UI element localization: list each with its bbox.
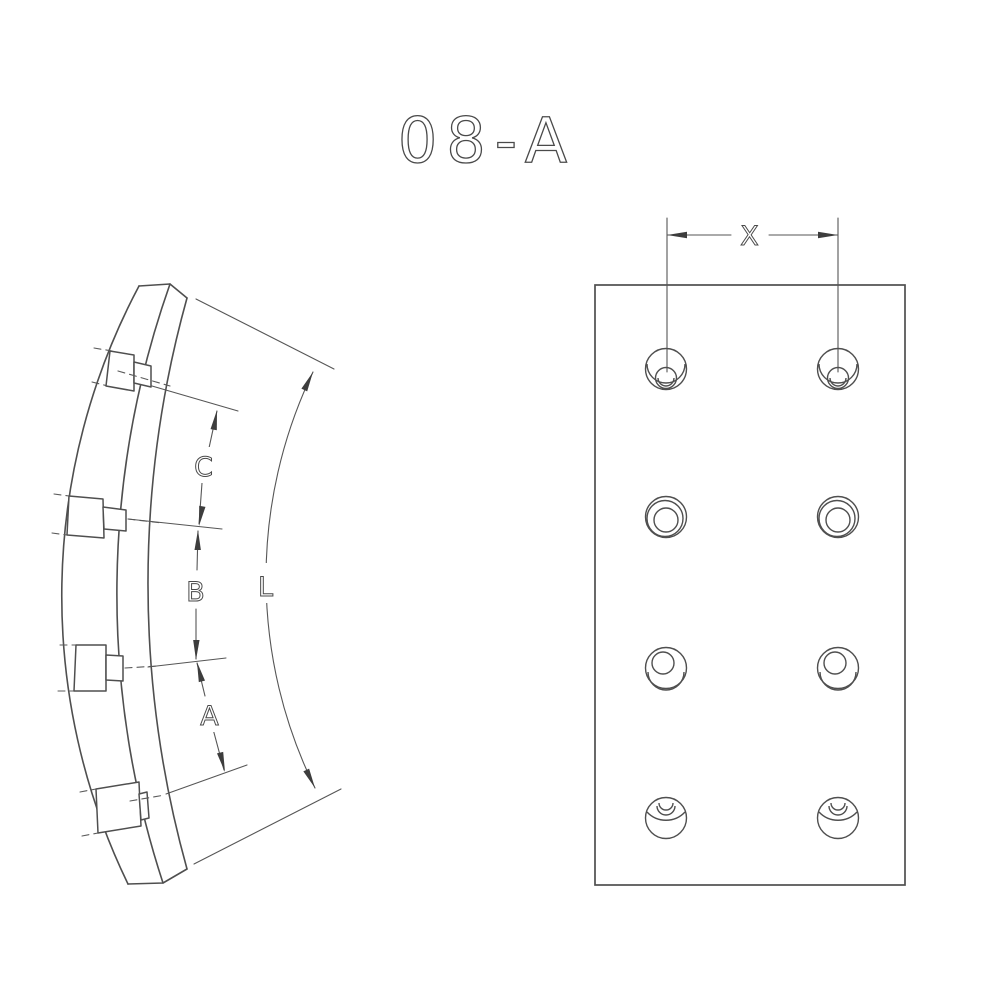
side-view: C B A L — [52, 284, 341, 884]
arrowhead — [194, 530, 201, 550]
extension-line-top-end — [196, 299, 334, 369]
extension-line-bottom-end — [194, 789, 341, 864]
dim-label-c: C — [194, 452, 214, 483]
rivet-head — [96, 782, 141, 833]
rivet-head — [106, 351, 134, 391]
arrowhead — [196, 506, 206, 527]
dim-label-l: L — [258, 572, 274, 603]
dimension-l: L — [194, 299, 341, 864]
technical-drawing-page: 08-A — [0, 0, 1000, 1000]
rivet-neck — [103, 507, 126, 531]
drawing-title: 08-A — [398, 104, 576, 177]
arrowhead — [301, 371, 315, 392]
arrowhead — [303, 769, 318, 790]
top-end-edge — [139, 284, 187, 298]
dimension-c: C — [190, 409, 220, 526]
dimension-a: A — [194, 661, 228, 773]
brake-lining-drawing: 08-A — [0, 0, 1000, 1000]
dim-label-x: X — [740, 221, 760, 252]
dim-label-a: A — [200, 701, 219, 732]
face-view: X — [595, 218, 905, 885]
dimension-b: B — [182, 530, 209, 660]
arrowhead — [217, 752, 228, 773]
rivet-head — [67, 496, 104, 538]
rivet-bolt-3 — [58, 645, 158, 691]
extension-line-hole2 — [128, 519, 222, 529]
rivet-neck — [139, 792, 149, 820]
arrowhead — [194, 661, 205, 682]
rivet-bolt-2 — [52, 494, 162, 538]
dim-label-b: B — [186, 577, 206, 608]
arrowhead — [211, 409, 221, 430]
extension-line-hole4 — [166, 765, 247, 794]
arrowhead — [667, 232, 687, 238]
extension-line-hole3 — [148, 658, 226, 667]
lining-face-outline — [595, 285, 905, 885]
rivet-neck — [134, 362, 151, 387]
rivet-neck — [106, 655, 123, 681]
arrowhead — [818, 232, 838, 238]
rivet-bolt-4 — [80, 782, 165, 836]
rivet-head — [74, 645, 106, 691]
rivet-bolt-1 — [92, 348, 170, 391]
bottom-end-edge — [128, 869, 187, 884]
inner-arc — [148, 298, 187, 869]
arrowhead — [193, 640, 200, 660]
